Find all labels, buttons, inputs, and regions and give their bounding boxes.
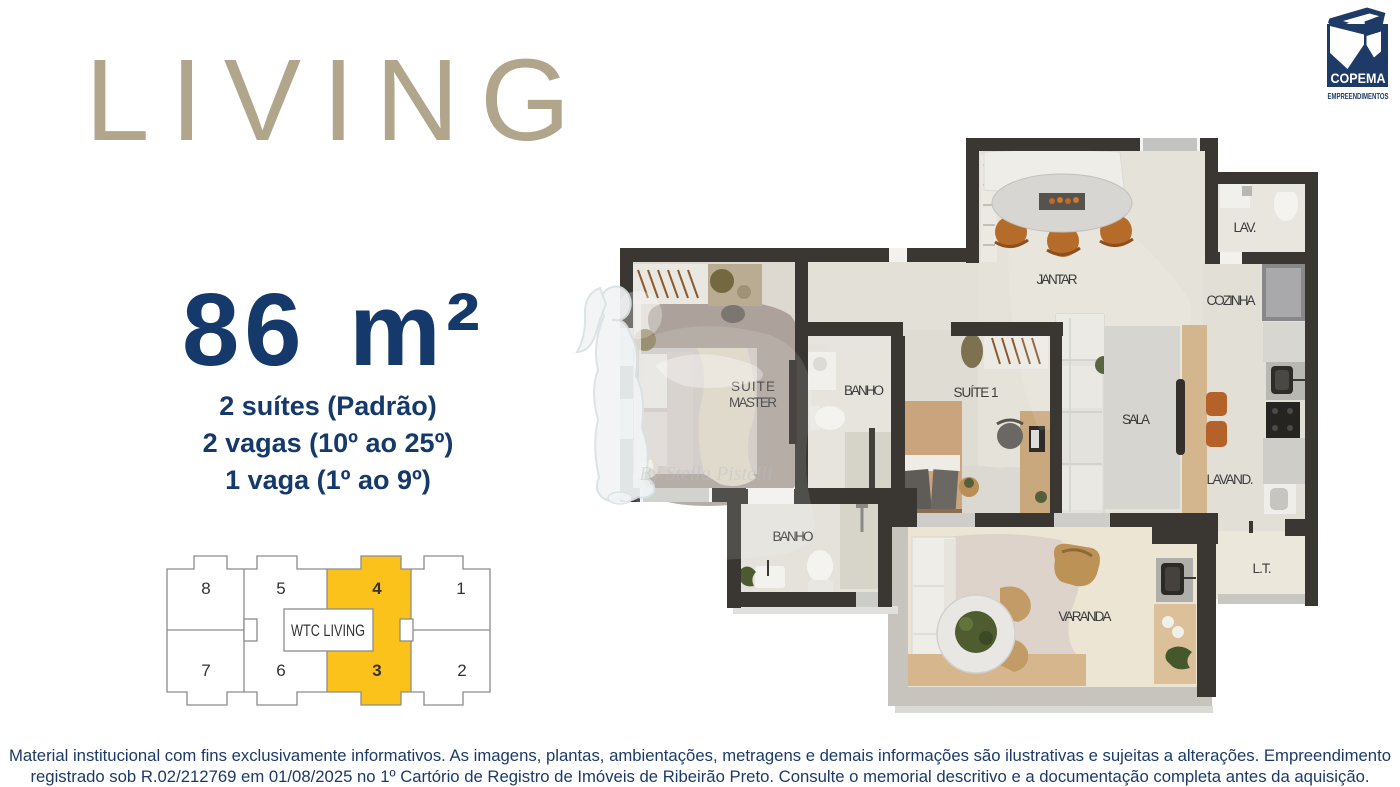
svg-text:EMPREENDIMENTOS: EMPREENDIMENTOS bbox=[1328, 92, 1389, 101]
svg-text:7: 7 bbox=[201, 661, 210, 680]
svg-text:6: 6 bbox=[276, 661, 285, 680]
svg-text:8: 8 bbox=[201, 579, 210, 598]
svg-text:BANHO: BANHO bbox=[844, 383, 884, 398]
svg-text:4: 4 bbox=[372, 579, 382, 598]
svg-text:2: 2 bbox=[457, 661, 466, 680]
svg-text:JANTAR: JANTAR bbox=[1037, 272, 1078, 287]
svg-text:L.T.: L.T. bbox=[1253, 561, 1272, 576]
svg-text:1: 1 bbox=[456, 579, 465, 598]
svg-text:VARANDA: VARANDA bbox=[1059, 609, 1112, 624]
svg-text:SUÍTE 1: SUÍTE 1 bbox=[954, 385, 999, 400]
svg-text:COPEMA: COPEMA bbox=[1331, 70, 1386, 86]
svg-text:By Stella Pistelli: By Stella Pistelli bbox=[639, 463, 772, 485]
svg-text:LAV.: LAV. bbox=[1234, 220, 1257, 235]
svg-text:SALA: SALA bbox=[1122, 412, 1150, 427]
svg-text:3: 3 bbox=[372, 661, 381, 680]
svg-text:COZINHA: COZINHA bbox=[1207, 293, 1256, 308]
svg-text:WTC LIVING: WTC LIVING bbox=[291, 621, 365, 640]
svg-text:5: 5 bbox=[276, 579, 285, 598]
svg-text:LAVAND.: LAVAND. bbox=[1207, 472, 1254, 487]
